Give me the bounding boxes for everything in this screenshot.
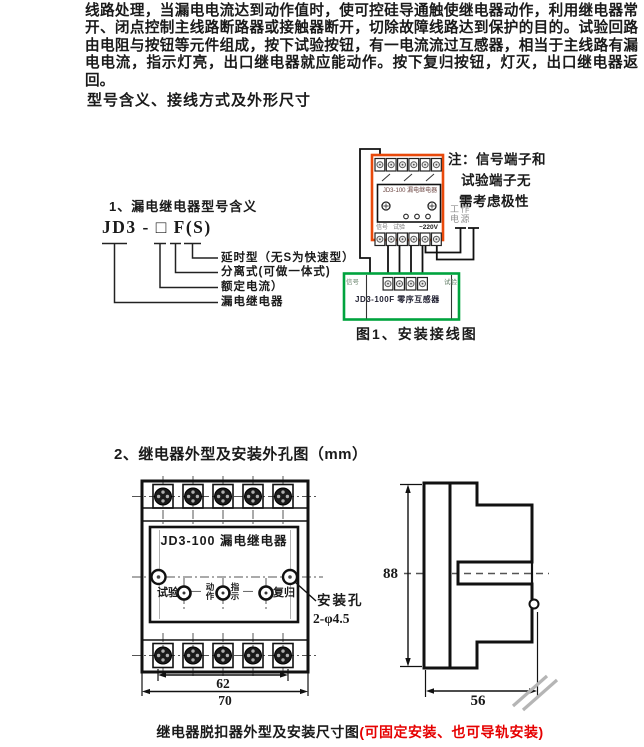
transformer-title: JD3-100F 零序互感器 [355, 295, 440, 304]
test-button [178, 587, 191, 600]
model-code: JD3 - □ F(S) [102, 217, 212, 237]
intro-paragraph: 线路处理，当漏电电流达到动作值时，使可控硅导通触使继电器动作，利用继电器常开、闭… [85, 3, 638, 90]
front-dash-left: — [191, 586, 201, 598]
mounting-hole-left [152, 570, 166, 584]
din-rail-clip [530, 600, 539, 609]
relay-title: JD3-100 漏电继电器 [379, 188, 441, 195]
front-dash-right: — [243, 586, 253, 598]
hole-note-spec: 2-φ4.5 [313, 611, 350, 627]
relay-indicators [404, 214, 431, 219]
break-marks [513, 676, 557, 710]
relay-voltage-label: ~220V [419, 224, 438, 231]
reset-button [260, 587, 273, 600]
relay-test-label: 试验 [393, 225, 405, 232]
section2-title: 2、继电器外型及安装外孔图（mm） [114, 446, 368, 463]
side-body-outline [450, 483, 532, 668]
side-view-drawing [400, 483, 557, 710]
legend-label-current: 额定电流） [221, 281, 284, 294]
model-legend-subtitle: 1、漏电继电器型号含义 [109, 200, 257, 215]
wiring-note-line1: 注：信号端子和 [448, 152, 546, 168]
front-indicate-label: 指示 [230, 583, 240, 601]
hole-note-label: 安装孔 [317, 593, 364, 609]
section1-title: 型号含义、接线方式及外形尺寸 [87, 92, 311, 109]
legend-label-separate: 分离式(可做一体式) [221, 266, 331, 279]
relay-screw-left [382, 202, 390, 210]
front-panel-title: JD3-100 漏电继电器 [150, 534, 298, 548]
side-dim-extensions [400, 485, 538, 698]
front-action-label: 动作 [205, 583, 215, 601]
wiring-diagram [344, 149, 479, 320]
front-view-drawing [132, 476, 323, 696]
front-reset-label: 复归 [273, 587, 295, 600]
side-mounting-plate [424, 483, 450, 668]
front-test-label: 试验 [157, 587, 179, 600]
legend-label-delay: 延时型（无S为快速型） [221, 252, 355, 265]
legend-label-relay: 漏电继电器 [221, 296, 284, 309]
dim-70: 70 [142, 693, 308, 709]
bottom-caption-red: (可固定安装、也可导轨安装) [359, 724, 543, 740]
diagram-linework [0, 0, 644, 747]
power-label-line2: 电源 [450, 214, 471, 224]
wiring-note-line2: 试验端子无 [461, 173, 531, 189]
mounting-hole-right [283, 570, 297, 584]
transformer-test-label: 试验 [444, 279, 457, 286]
indicator-lamp [217, 587, 230, 600]
figure1-caption: 图1、安装接线图 [356, 326, 478, 342]
relay-signal-label: 信号 [376, 225, 388, 232]
bottom-caption-black: 继电器脱扣器外型及安装尺寸图 [156, 724, 359, 740]
transformer-signal-label: 信号 [346, 279, 359, 286]
bottom-caption: 继电器脱扣器外型及安装尺寸图(可固定安装、也可导轨安装) [70, 724, 630, 740]
dim-88: 88 [383, 566, 398, 583]
model-legend-lines [102, 244, 218, 303]
relay-screw-right [428, 202, 436, 210]
dim-56: 56 [458, 693, 498, 710]
dim-62: 62 [158, 676, 288, 692]
